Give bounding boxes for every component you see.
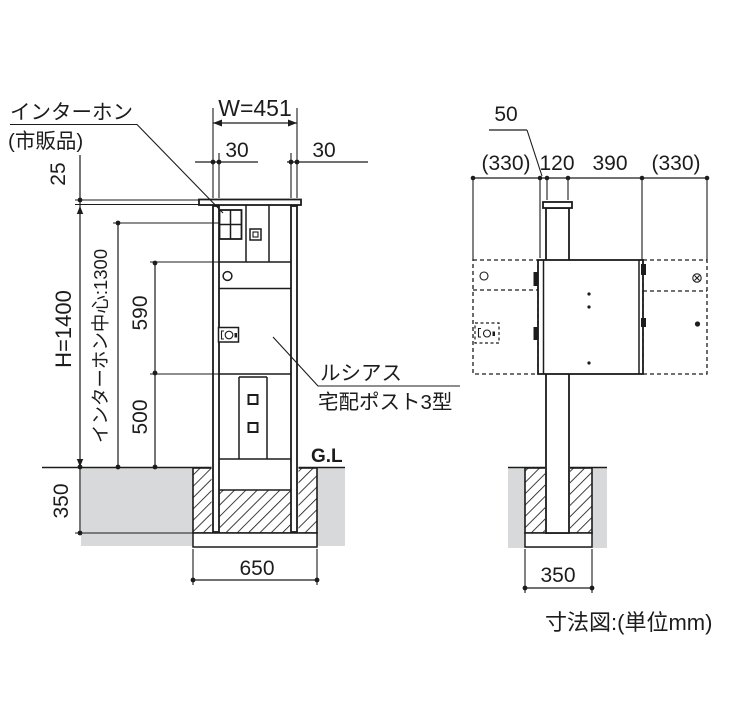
side-post-cap — [543, 202, 572, 208]
dim-post-width-right: 30 — [312, 139, 335, 162]
intercom-unit — [220, 210, 242, 239]
door-lock — [219, 328, 239, 343]
dim-intercom-center: インターホン中心:1300 — [90, 249, 111, 443]
dim-body-depth: 390 — [592, 152, 627, 175]
lower-panel — [239, 377, 267, 459]
dim-post-depth: 120 — [539, 152, 574, 175]
dim-lower-section: 500 — [129, 399, 152, 434]
post-box-side — [534, 260, 647, 374]
dim-overall-height: H=1400 — [51, 290, 76, 368]
ground-level-label: G.L — [311, 446, 343, 467]
dim-door-swing-rear: (330) — [651, 152, 700, 175]
left-post — [213, 206, 219, 532]
intercom-label-line1: インターホン — [10, 101, 133, 124]
dim-foundation-width-side: 350 — [540, 564, 575, 587]
front-view: ルシアス 宅配ポスト3型 G.L インターホン (市販品) W=451 — [8, 95, 460, 585]
foundation-front — [193, 466, 317, 547]
dimension-diagram: ルシアス 宅配ポスト3型 G.L インターホン (市販品) W=451 — [0, 0, 740, 726]
right-post — [291, 206, 297, 532]
dim-embed-depth: 350 — [50, 483, 73, 518]
dial-knob — [223, 272, 232, 281]
product-label-line2: 宅配ポスト3型 — [318, 391, 452, 414]
dim-cap-height: 25 — [47, 162, 70, 185]
dim-foundation-width-front: 650 — [239, 557, 274, 580]
side-view: 50 (330) 120 390 (330) — [471, 103, 710, 593]
dim-post-width-left: 30 — [225, 139, 248, 162]
intercom-label-line2: (市販品) — [8, 130, 83, 153]
dim-front-clearance: 50 — [494, 103, 517, 126]
dim-door-swing-front: (330) — [481, 152, 530, 175]
diagram-canvas: ルシアス 宅配ポスト3型 G.L インターホン (市販品) W=451 — [0, 0, 740, 726]
diagram-caption: 寸法図:(単位mm) — [545, 610, 712, 635]
dim-overall-width: W=451 — [218, 95, 292, 121]
product-label-line1: ルシアス — [320, 362, 402, 385]
dim-upper-section: 590 — [129, 295, 152, 330]
front-door-swing — [473, 260, 538, 374]
rear-door-swing — [643, 260, 707, 374]
product-label: ルシアス 宅配ポスト3型 — [273, 337, 460, 414]
intercom-callout: インターホン (市販品) — [8, 101, 223, 213]
nameplate-button — [250, 229, 261, 240]
